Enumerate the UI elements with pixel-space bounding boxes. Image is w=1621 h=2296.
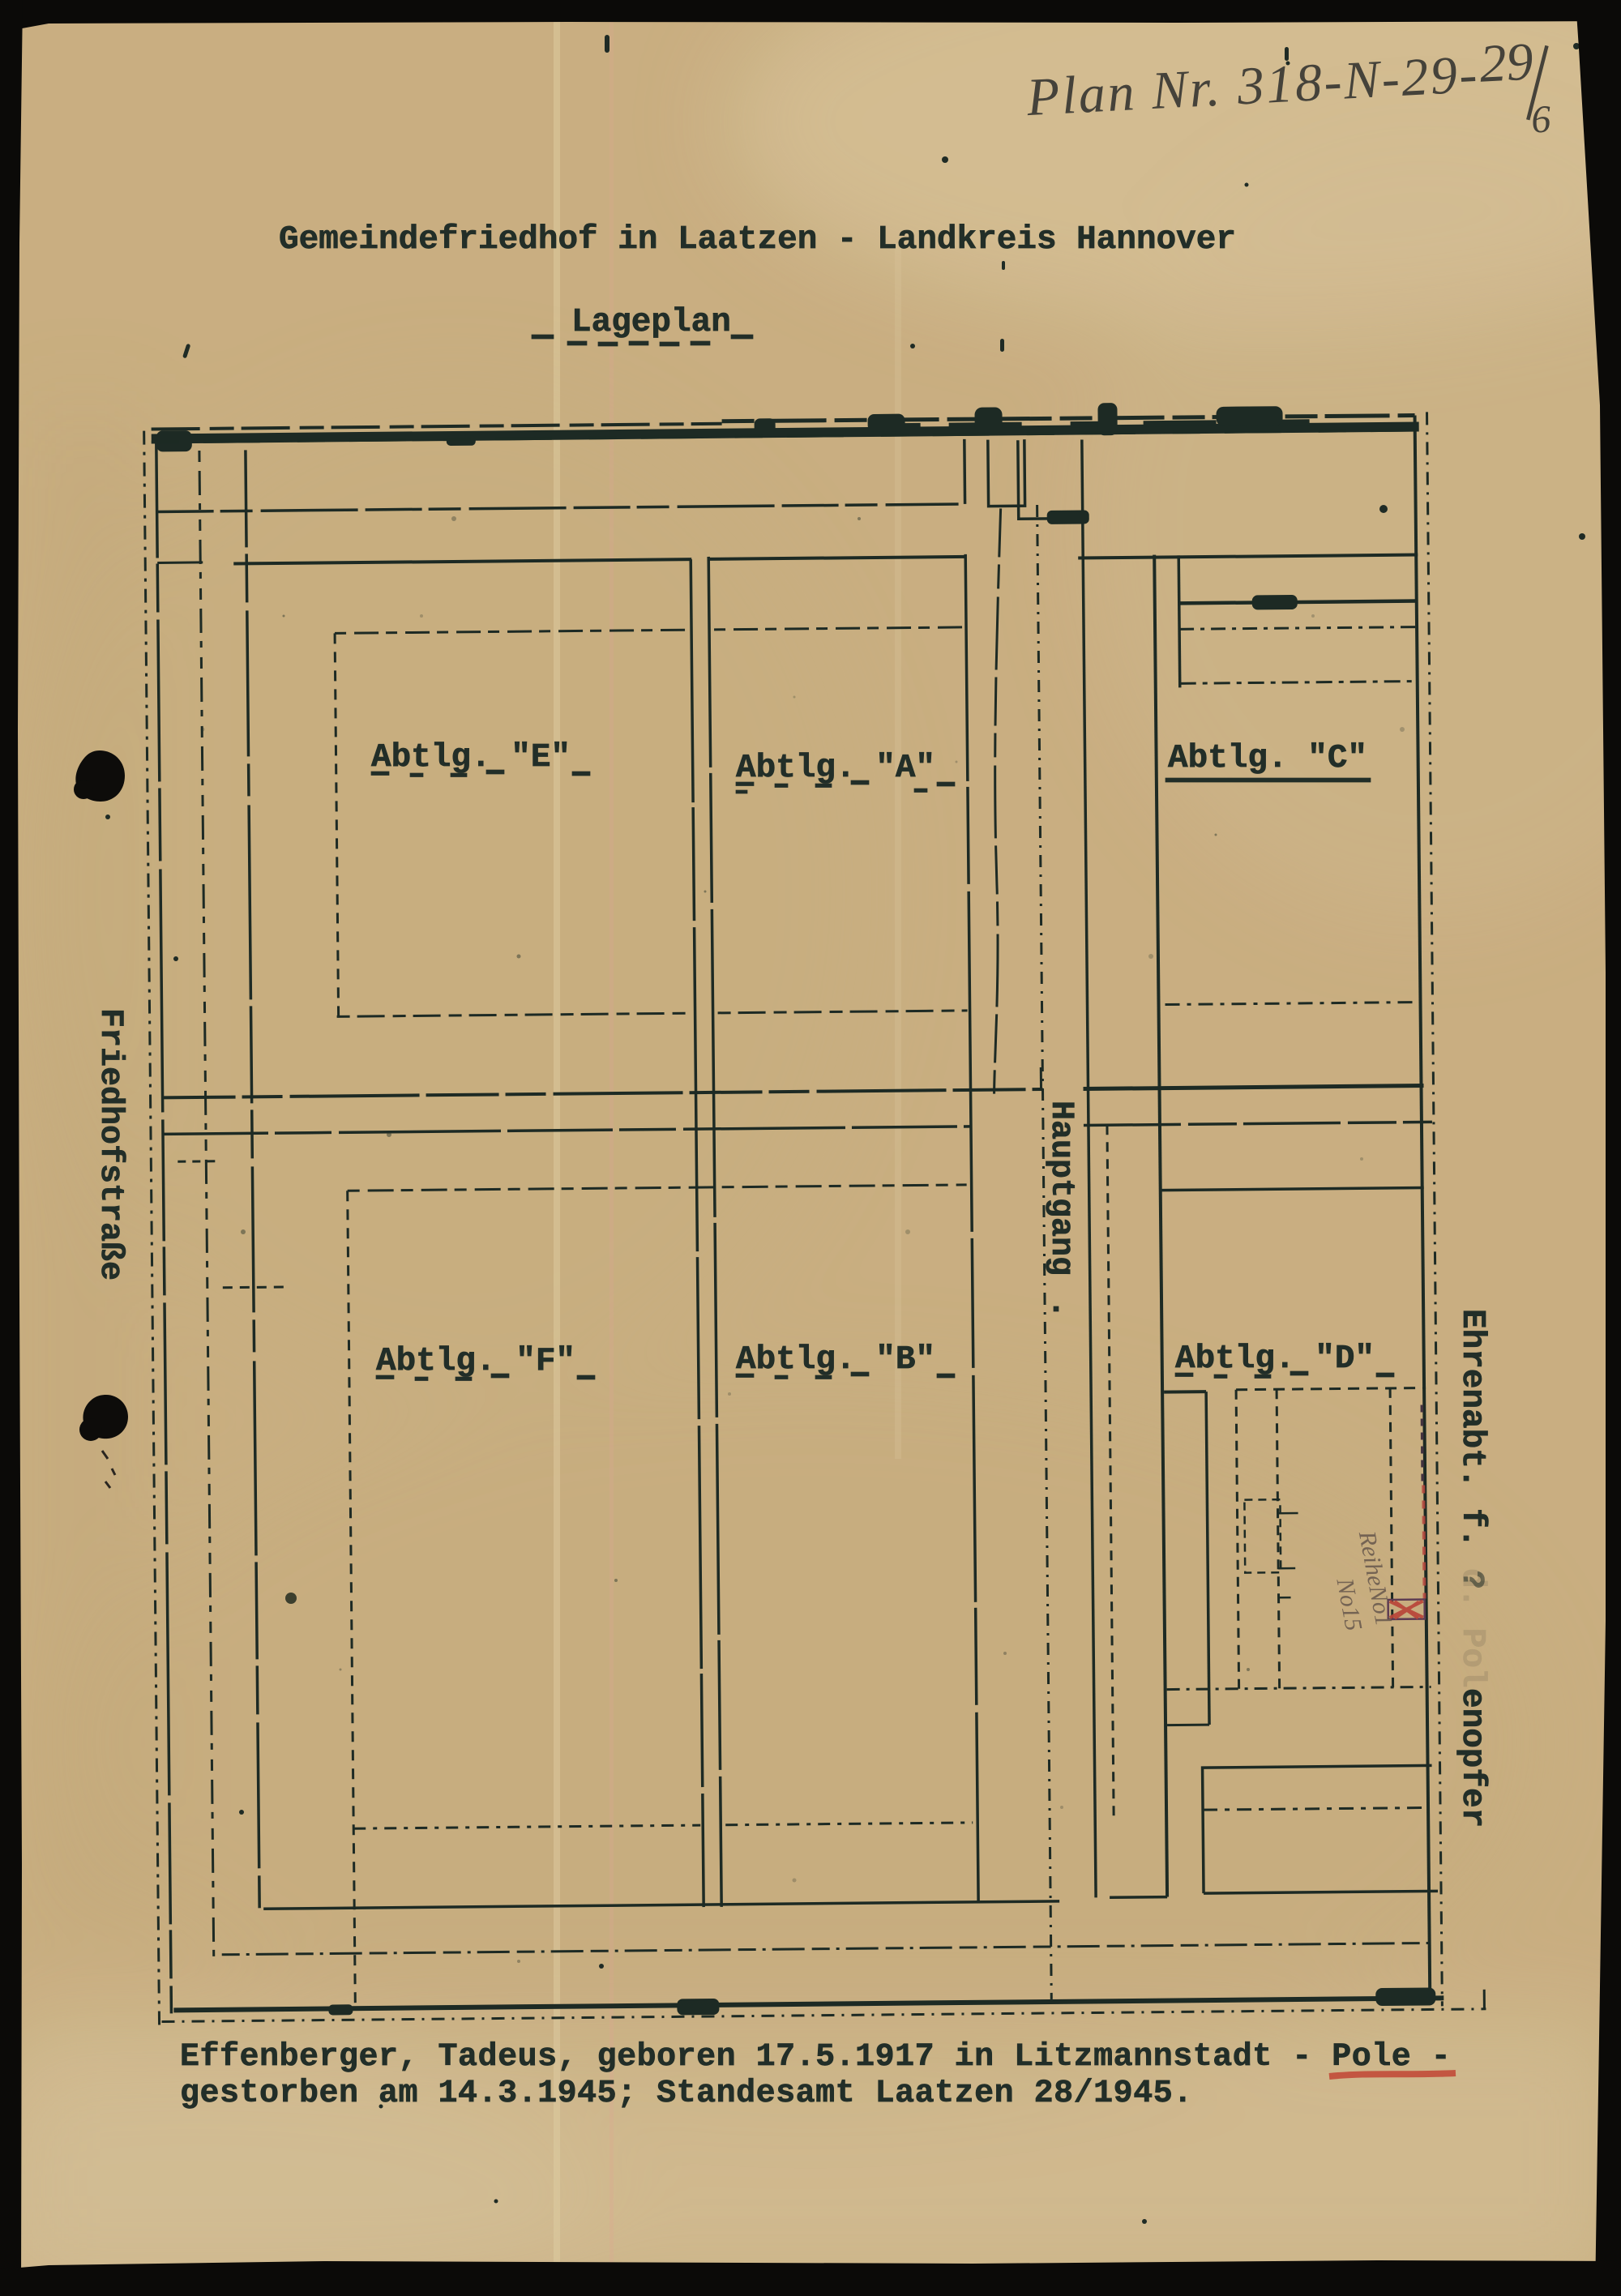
svg-text:Abtlg. "A": Abtlg. "A" [736, 750, 935, 787]
svg-text:Abtlg. "B": Abtlg. "B" [736, 1341, 935, 1379]
svg-text:gestorben am 14.3.1945; Stande: gestorben am 14.3.1945; Standesamt Laatz… [180, 2076, 1193, 2112]
svg-text:Ehrenabt. f.: Ehrenabt. f. [1453, 1309, 1491, 1548]
svg-text:Friedhofstraße: Friedhofstraße [92, 1008, 128, 1281]
svg-text:Abtlg. "D": Abtlg. "D" [1175, 1340, 1375, 1378]
svg-text:6: 6 [1530, 97, 1552, 141]
svg-text:Plan Nr. 318-N-29-: Plan Nr. 318-N-29- [1024, 45, 1478, 127]
svg-text:Abtlg. "E": Abtlg. "E" [371, 739, 571, 776]
svg-text:Lageplan: Lageplan [571, 304, 731, 341]
svg-text:Effenberger, Tadeus, geboren 1: Effenberger, Tadeus, geboren 17.5.1917 i… [180, 2039, 1451, 2076]
svg-text:Hauptgang: Hauptgang [1042, 1101, 1079, 1276]
svg-text:Gemeindefriedhof in Laatzen -: Gemeindefriedhof in Laatzen - Landkreis … [279, 221, 1236, 259]
svg-text:29: 29 [1478, 32, 1535, 93]
svg-text:enopfer: enopfer [1453, 1688, 1491, 1828]
svg-text:Abtlg. "F": Abtlg. "F" [376, 1343, 575, 1380]
svg-text:Abtlg. "C": Abtlg. "C" [1168, 740, 1367, 777]
svg-text:?: ? [1454, 1571, 1489, 1589]
